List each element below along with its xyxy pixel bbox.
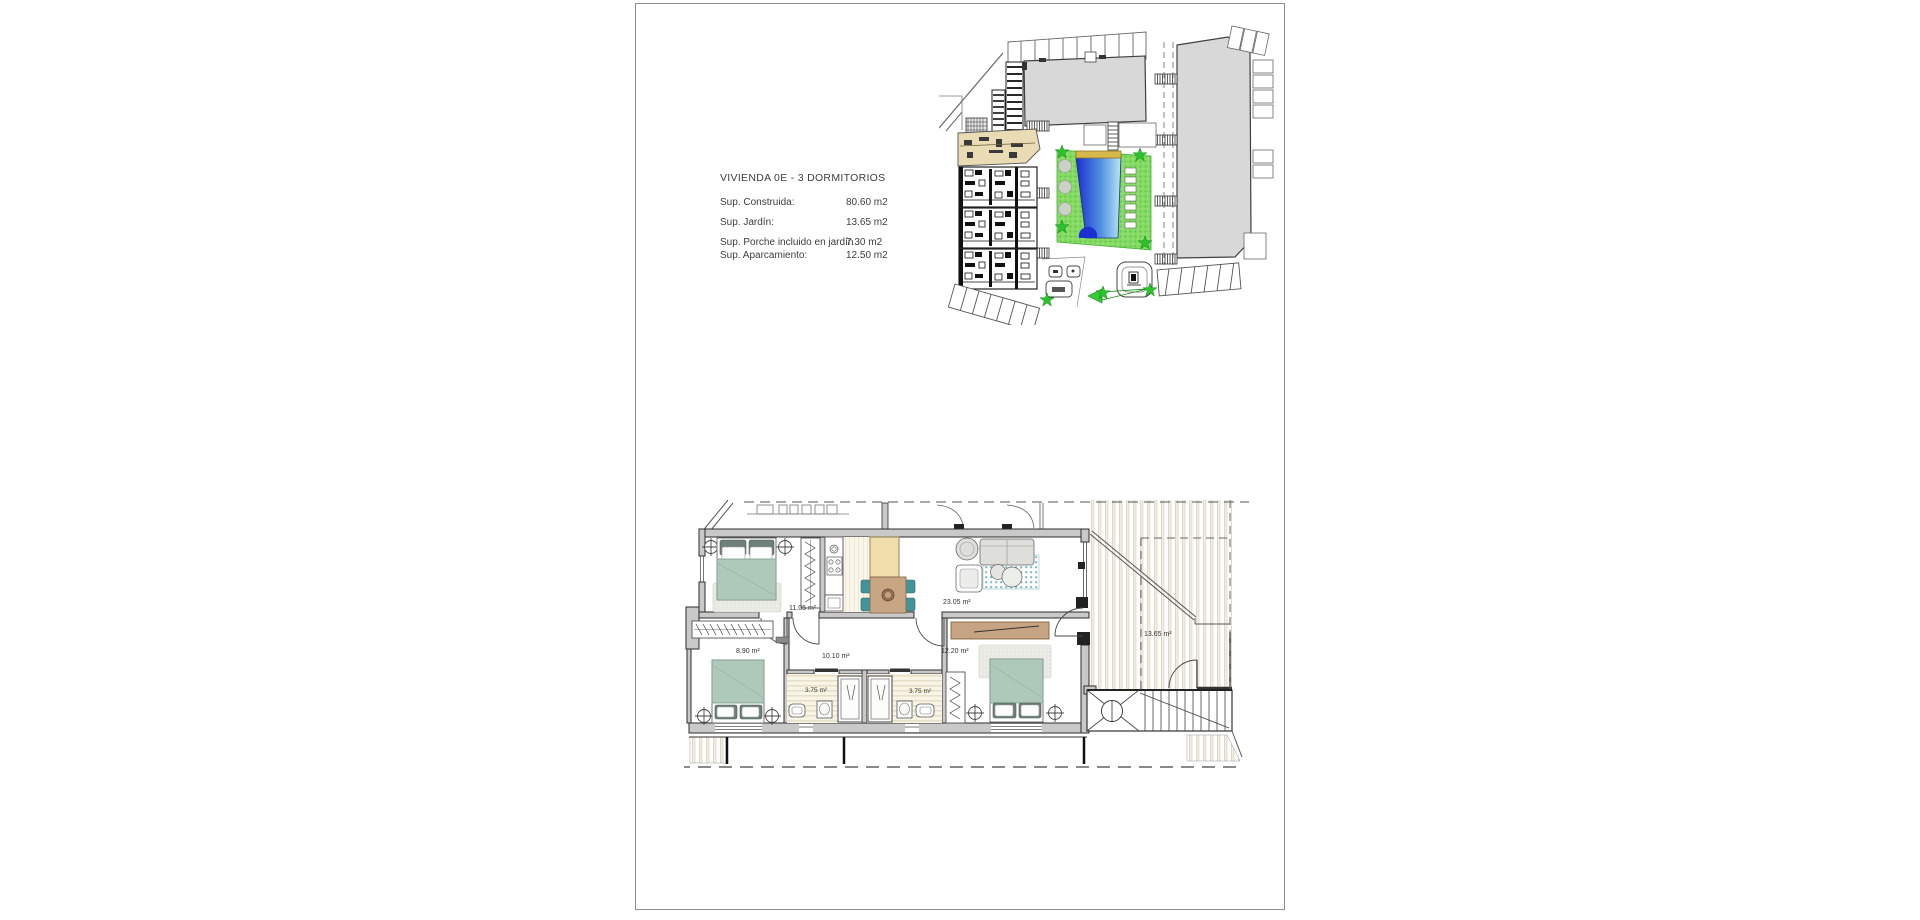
legend-title: VIVIENDA 0E - 3 DORMITORIOS (720, 172, 960, 184)
coffee-table (1002, 567, 1022, 587)
parking-row-bottom-left (948, 284, 1039, 325)
legend-row-jardin: Sup. Jardín: 13.65 m2 (720, 216, 960, 229)
building-block-main (1022, 52, 1146, 126)
closet (946, 672, 965, 723)
living-room: 23.05 m² (943, 538, 1039, 606)
wardrobe (692, 621, 773, 638)
parking-strip (689, 737, 1087, 764)
bathroom-2: 3.75 m² (867, 674, 942, 723)
legend-label: Sup. Construida: (720, 197, 795, 208)
double-bed (712, 660, 764, 723)
legend-value: 12.50 m2 (846, 249, 888, 262)
unit-column (958, 129, 1040, 289)
room-label: 23.05 m² (943, 599, 971, 606)
legend-value: 13.65 m2 (846, 216, 888, 229)
legend-value: 7.30 m2 (846, 236, 882, 249)
site-plan (939, 20, 1279, 325)
room-label: 3.75 m² (805, 687, 828, 694)
parking-row-bottom-right (1157, 263, 1241, 296)
double-bed (717, 538, 776, 600)
hallway: 10.10 m² (822, 653, 850, 660)
legend-value: 80.60 m2 (846, 196, 888, 209)
legend-label: Sup. Aparcamiento: (720, 250, 807, 261)
glass-wall (1055, 542, 1090, 645)
room-label: 3.75 m² (909, 688, 932, 695)
bedroom-2: 8.90 m² (692, 621, 781, 725)
building-block-right (1177, 26, 1273, 259)
island (870, 537, 899, 577)
toilet (789, 704, 805, 717)
armchair (956, 538, 978, 560)
bedroom-3: 12.20 m² (941, 622, 1064, 723)
stair-core (966, 62, 1023, 133)
legend-row-porche: Sup. Porche incluido en jardín 7.30 m2 (720, 236, 960, 249)
room-label: 11.05 m² (789, 605, 817, 612)
plan-sheet: VIVIENDA 0E - 3 DORMITORIOS Sup. Constru… (635, 3, 1285, 910)
bedroom-1: 11.05 m² (702, 538, 820, 612)
kitchen (825, 537, 915, 613)
desk (951, 622, 1049, 639)
pool-garden (1055, 122, 1156, 250)
legend-label: Sup. Porche incluido en jardín (720, 237, 853, 248)
highlighted-unit (958, 129, 1040, 166)
sheet-background: VIVIENDA 0E - 3 DORMITORIOS Sup. Constru… (0, 0, 1920, 920)
double-bed (990, 659, 1043, 722)
floor-plan: 11.05 m² (684, 488, 1249, 788)
legend-row-aparcamiento: Sup. Aparcamiento: 12.50 m2 (720, 249, 960, 262)
room-label: 10.10 m² (822, 653, 850, 660)
wardrobe (801, 538, 820, 608)
amenity-structures (1040, 257, 1157, 307)
room-label: 8.90 m² (736, 648, 760, 655)
legend: VIVIENDA 0E - 3 DORMITORIOS Sup. Constru… (720, 172, 960, 262)
bathroom-1: 3.75 m² (787, 674, 862, 723)
room-label: 12.20 m² (941, 648, 969, 655)
legend-label: Sup. Jardín: (720, 217, 774, 228)
room-label-garden: 13.65 m² (1144, 631, 1172, 638)
legend-row-construida: Sup. Construida: 80.60 m2 (720, 196, 960, 209)
